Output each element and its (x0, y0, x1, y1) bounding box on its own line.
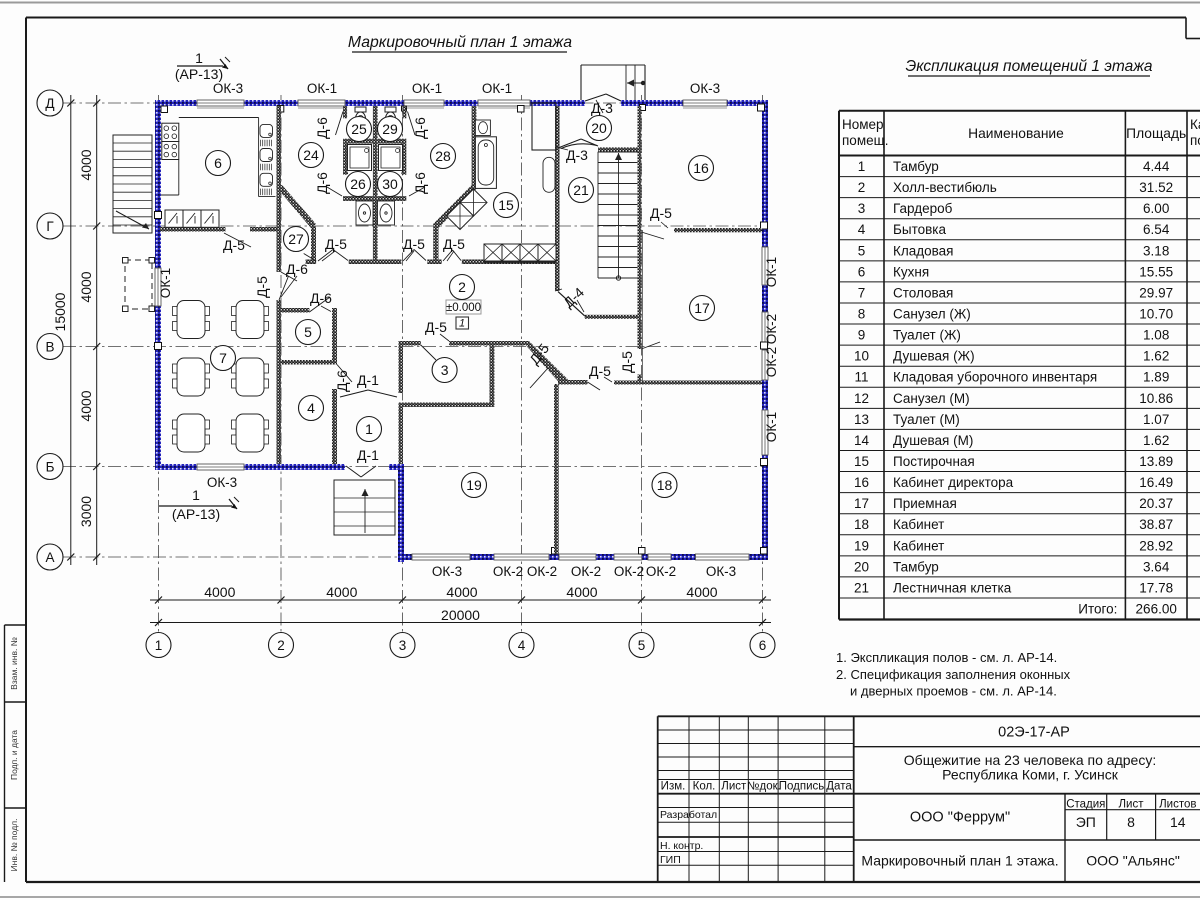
svg-text:Холл-вестибюль: Холл-вестибюль (893, 180, 997, 195)
svg-text:ОК-2: ОК-2 (764, 314, 779, 344)
svg-text:ОК-2: ОК-2 (646, 564, 676, 579)
svg-text:Тамбур: Тамбур (893, 159, 939, 174)
svg-text:Душевая (Ж): Душевая (Ж) (893, 349, 975, 364)
svg-text:ОК-2: ОК-2 (614, 564, 644, 579)
svg-text:16.49: 16.49 (1139, 475, 1173, 490)
svg-text:6: 6 (759, 638, 767, 653)
svg-text:38.87: 38.87 (1139, 517, 1173, 532)
svg-text:18: 18 (854, 517, 869, 532)
svg-text:Инв. № подл.: Инв. № подл. (9, 819, 19, 872)
svg-text:ОК-2: ОК-2 (527, 564, 557, 579)
svg-text:ОК-3: ОК-3 (207, 475, 237, 490)
svg-text:Д-1: Д-1 (357, 372, 379, 388)
svg-text:Наименование: Наименование (968, 126, 1064, 141)
svg-text:Лист: Лист (721, 781, 747, 793)
svg-text:1. Экспликация полов - см. л.: 1. Экспликация полов - см. л. АР-14. (836, 650, 1057, 665)
svg-text:Г: Г (46, 219, 54, 234)
svg-text:4000: 4000 (204, 584, 235, 600)
svg-text:Тамбур: Тамбур (893, 559, 939, 574)
svg-text:Номер: Номер (842, 117, 884, 132)
svg-text:Бытовка: Бытовка (893, 222, 946, 237)
svg-text:Экспликация помещений 1 этажа: Экспликация помещений 1 этажа (905, 58, 1152, 75)
svg-text:1: 1 (365, 421, 373, 437)
svg-text:29: 29 (382, 121, 398, 137)
svg-text:ОК-1: ОК-1 (482, 81, 512, 96)
svg-text:(АР-13): (АР-13) (172, 506, 220, 522)
svg-text:ОК-1: ОК-1 (764, 412, 779, 442)
svg-text:5: 5 (304, 324, 312, 340)
svg-text:1.08: 1.08 (1143, 328, 1169, 343)
svg-text:Д-5: Д-5 (254, 276, 270, 298)
svg-text:Приемная: Приемная (893, 496, 957, 511)
svg-text:Д-6: Д-6 (412, 172, 428, 194)
svg-text:А: А (45, 550, 54, 565)
svg-text:14: 14 (1170, 814, 1186, 830)
svg-text:Кладовая: Кладовая (893, 243, 953, 258)
svg-text:Дата: Дата (826, 781, 852, 793)
svg-text:Столовая: Столовая (893, 285, 953, 300)
svg-text:4: 4 (858, 222, 866, 237)
svg-text:Д-5: Д-5 (589, 363, 611, 379)
svg-text:Лестничная клетка: Лестничная клетка (893, 580, 1012, 595)
svg-text:3.18: 3.18 (1143, 243, 1169, 258)
svg-text:Санузел (М): Санузел (М) (893, 391, 970, 406)
svg-text:ООО "Альянс": ООО "Альянс" (1086, 853, 1180, 869)
svg-text:4.44: 4.44 (1143, 159, 1170, 174)
svg-text:5: 5 (858, 243, 866, 258)
svg-text:Кол.: Кол. (693, 781, 716, 793)
svg-text:4000: 4000 (78, 149, 94, 180)
svg-text:28: 28 (435, 148, 451, 164)
svg-text:13: 13 (854, 412, 869, 427)
svg-text:17.78: 17.78 (1139, 580, 1173, 595)
svg-text:27: 27 (288, 231, 304, 247)
svg-text:30: 30 (382, 176, 398, 192)
svg-text:1.62: 1.62 (1143, 433, 1169, 448)
svg-text:3: 3 (399, 638, 407, 653)
svg-text:Д-6: Д-6 (412, 117, 428, 139)
svg-text:3: 3 (858, 201, 866, 216)
svg-text:(АР-13): (АР-13) (175, 66, 223, 82)
svg-text:Кухня: Кухня (893, 264, 929, 279)
svg-text:20: 20 (854, 559, 869, 574)
svg-text:6: 6 (858, 264, 866, 279)
svg-text:8: 8 (1127, 814, 1135, 830)
svg-text:4000: 4000 (566, 584, 597, 600)
svg-text:Д: Д (45, 96, 54, 111)
svg-text:1.89: 1.89 (1143, 370, 1169, 385)
svg-text:7: 7 (219, 350, 227, 366)
svg-text:Туалет (Ж): Туалет (Ж) (893, 328, 961, 343)
svg-text:Д-5: Д-5 (619, 351, 635, 373)
svg-text:1: 1 (195, 50, 203, 66)
svg-text:1: 1 (459, 318, 465, 330)
svg-text:31.52: 31.52 (1139, 180, 1173, 195)
svg-text:15000: 15000 (52, 292, 68, 331)
svg-text:Д-3: Д-3 (591, 100, 613, 116)
svg-text:2: 2 (277, 638, 285, 653)
svg-text:Н. контр.: Н. контр. (660, 840, 703, 852)
svg-text:ОК-1: ОК-1 (412, 81, 442, 96)
svg-text:10.70: 10.70 (1139, 307, 1173, 322)
svg-text:Кладовая уборочного инвентаря: Кладовая уборочного инвентаря (893, 370, 1097, 385)
svg-text:ОК-2: ОК-2 (571, 564, 601, 579)
svg-text:4000: 4000 (78, 271, 94, 302)
svg-text:20000: 20000 (441, 607, 480, 623)
svg-text:2: 2 (858, 180, 866, 195)
svg-text:15: 15 (498, 197, 514, 213)
svg-text:9: 9 (858, 328, 866, 343)
svg-text:и дверных проемов - см. л. АР-: и дверных проемов - см. л. АР-14. (850, 684, 1057, 699)
svg-text:3.64: 3.64 (1143, 559, 1170, 574)
svg-text:24: 24 (303, 147, 319, 163)
svg-text:25: 25 (351, 121, 367, 137)
svg-text:ОК-1: ОК-1 (307, 81, 337, 96)
svg-text:Д-5: Д-5 (403, 236, 425, 252)
svg-text:19: 19 (854, 538, 869, 553)
svg-text:Листов: Листов (1159, 799, 1196, 811)
svg-text:Д-5: Д-5 (223, 237, 245, 253)
svg-text:Кабинет: Кабинет (893, 517, 944, 532)
svg-text:4000: 4000 (78, 390, 94, 421)
svg-text:6: 6 (214, 155, 222, 171)
svg-text:13.89: 13.89 (1139, 454, 1173, 469)
svg-text:Д-6: Д-6 (334, 370, 350, 392)
svg-text:ООО "Феррум": ООО "Феррум" (910, 810, 1010, 826)
svg-text:Д-1: Д-1 (357, 447, 379, 463)
svg-text:Итого:: Итого: (1078, 601, 1117, 616)
svg-text:2: 2 (458, 279, 466, 295)
svg-text:Д-5: Д-5 (650, 205, 672, 221)
svg-text:21: 21 (573, 182, 589, 198)
svg-text:17: 17 (694, 300, 710, 316)
svg-text:Д-6: Д-6 (314, 172, 330, 194)
svg-text:5: 5 (638, 638, 646, 653)
svg-text:20.37: 20.37 (1139, 496, 1173, 511)
svg-text:ЭП: ЭП (1076, 814, 1096, 830)
svg-text:ОК-1: ОК-1 (158, 268, 173, 298)
svg-text:Душевая (М): Душевая (М) (893, 433, 973, 448)
svg-text:1.07: 1.07 (1143, 412, 1169, 427)
svg-text:Д-6: Д-6 (286, 261, 308, 277)
svg-text:Д-5: Д-5 (425, 319, 447, 335)
svg-text:18: 18 (657, 477, 673, 493)
svg-text:ОК-3: ОК-3 (690, 81, 720, 96)
svg-text:Ка: Ка (1190, 117, 1200, 132)
svg-text:4: 4 (518, 638, 526, 653)
svg-text:4: 4 (307, 400, 315, 416)
svg-text:16: 16 (693, 160, 709, 176)
svg-text:по: по (1190, 133, 1200, 148)
svg-text:Подпись: Подпись (779, 781, 825, 793)
svg-text:Изм.: Изм. (661, 781, 686, 793)
svg-text:В: В (45, 340, 54, 355)
svg-text:20: 20 (591, 120, 607, 136)
svg-text:ОК-2: ОК-2 (493, 564, 523, 579)
svg-text:ОК-2: ОК-2 (764, 347, 779, 377)
svg-text:ОК-1: ОК-1 (764, 257, 779, 287)
svg-text:Маркировочный план 1 этажа: Маркировочный план 1 этажа (348, 34, 572, 51)
svg-text:Маркировочный план 1 этажа.: Маркировочный план 1 этажа. (861, 853, 1058, 869)
svg-text:6.00: 6.00 (1143, 201, 1169, 216)
svg-text:Б: Б (46, 460, 55, 475)
svg-text:15.55: 15.55 (1139, 264, 1173, 279)
svg-text:Стадия: Стадия (1066, 799, 1105, 811)
svg-text:21: 21 (854, 580, 869, 595)
svg-text:10.86: 10.86 (1139, 391, 1173, 406)
svg-text:15: 15 (854, 454, 869, 469)
svg-text:Санузел (Ж): Санузел (Ж) (893, 307, 971, 322)
svg-text:4000: 4000 (326, 584, 357, 600)
svg-text:28.92: 28.92 (1139, 538, 1173, 553)
svg-text:7: 7 (858, 285, 866, 300)
svg-text:Туалет (М): Туалет (М) (893, 412, 960, 427)
svg-text:02Э-17-АР: 02Э-17-АР (998, 725, 1070, 741)
svg-text:Д-5: Д-5 (325, 236, 347, 252)
svg-text:Республика Коми, г. Усинск: Республика Коми, г. Усинск (942, 767, 1119, 783)
svg-text:16: 16 (854, 475, 869, 490)
svg-text:29.97: 29.97 (1139, 285, 1173, 300)
svg-text:17: 17 (854, 496, 869, 511)
svg-text:12: 12 (854, 391, 869, 406)
svg-text:Д-6: Д-6 (314, 117, 330, 139)
svg-text:1: 1 (155, 638, 163, 653)
svg-text:266.00: 266.00 (1136, 601, 1177, 616)
svg-text:11: 11 (854, 370, 868, 385)
svg-text:1: 1 (192, 487, 200, 503)
svg-text:Взам. инв. №: Взам. инв. № (9, 637, 19, 690)
svg-text:Д-5: Д-5 (443, 236, 465, 252)
svg-text:Подп. и дата: Подп. и дата (9, 730, 19, 780)
svg-text:1.62: 1.62 (1143, 349, 1169, 364)
svg-text:2. Спецификация заполнения око: 2. Спецификация заполнения оконных (836, 667, 1071, 682)
svg-text:Кабинет: Кабинет (893, 538, 944, 553)
svg-text:1: 1 (858, 159, 866, 174)
svg-text:Постирочная: Постирочная (893, 454, 975, 469)
svg-text:Кабинет директора: Кабинет директора (893, 475, 1014, 490)
svg-text:14: 14 (854, 433, 870, 448)
svg-text:Д-3: Д-3 (566, 147, 588, 163)
svg-text:19: 19 (466, 477, 482, 493)
svg-text:8: 8 (858, 307, 866, 322)
svg-text:4000: 4000 (686, 584, 717, 600)
svg-text:ГИП: ГИП (660, 854, 681, 866)
svg-text:ОК-3: ОК-3 (432, 564, 462, 579)
svg-text:№док.: №док. (747, 781, 781, 793)
svg-text:10: 10 (854, 349, 869, 364)
svg-text:Гардероб: Гардероб (893, 201, 953, 216)
svg-text:помещ.: помещ. (842, 133, 888, 148)
svg-text:4000: 4000 (446, 584, 477, 600)
svg-text:Площадь: Площадь (1126, 126, 1186, 141)
svg-text:3000: 3000 (78, 496, 94, 527)
svg-text:6.54: 6.54 (1143, 222, 1170, 237)
svg-text:Разработал: Разработал (660, 809, 717, 821)
svg-text:3: 3 (441, 362, 449, 378)
svg-text:±0.000: ±0.000 (446, 302, 481, 314)
svg-text:26: 26 (350, 176, 366, 192)
svg-text:ОК-3: ОК-3 (213, 81, 243, 96)
svg-text:Лист: Лист (1119, 799, 1145, 811)
svg-text:ОК-3: ОК-3 (706, 564, 736, 579)
svg-text:Д-6: Д-6 (310, 290, 332, 306)
